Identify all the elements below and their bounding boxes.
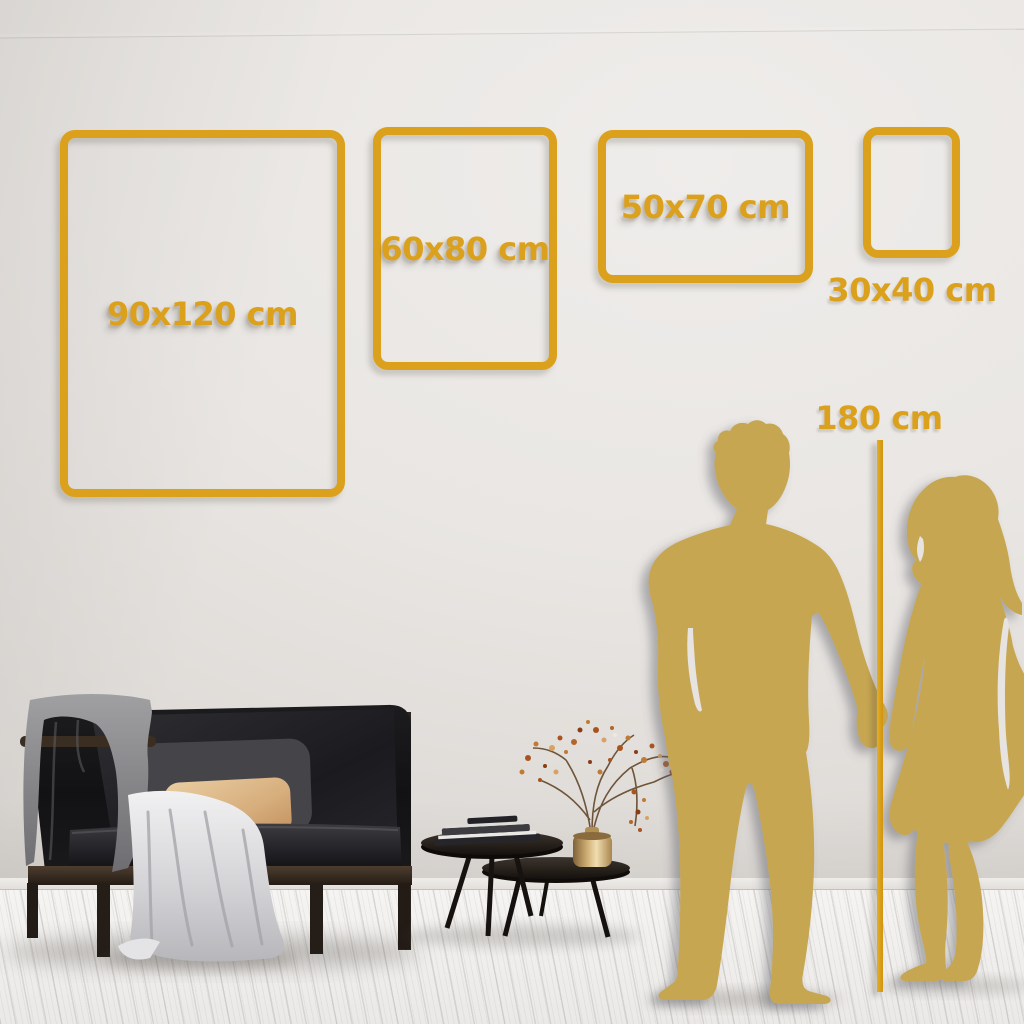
sofa-leg [27,883,38,938]
size-frame-30x40 [863,127,960,258]
size-label-30x40: 30x40 cm [820,271,1004,309]
size-frame-90x120: 90x120 cm [60,130,345,497]
size-label-90x120: 90x120 cm [107,295,298,333]
clasped-hands [857,697,888,748]
sofa-leg [398,883,410,949]
plant-berries [520,720,689,832]
vase-rim [573,832,611,840]
height-reference-label: 180 cm [789,399,969,437]
sofa [4,694,420,969]
sofa-leg [310,885,323,954]
man-silhouette [649,420,884,1004]
table-leg [447,854,470,928]
sofa-leg [97,885,110,957]
stacked-books [433,814,540,846]
size-label-50x70: 50x70 cm [621,188,790,226]
height-reference-line [877,440,883,992]
woman-front-leg [900,820,947,981]
size-guide-scene: 90x120 cm 60x80 cm 50x70 cm 30x40 cm 180… [0,0,1024,1024]
size-label-60x80: 60x80 cm [380,230,549,268]
size-frame-50x70: 50x70 cm [598,130,813,283]
size-frame-60x80: 60x80 cm [373,127,557,370]
couple-silhouette [649,420,1024,1004]
